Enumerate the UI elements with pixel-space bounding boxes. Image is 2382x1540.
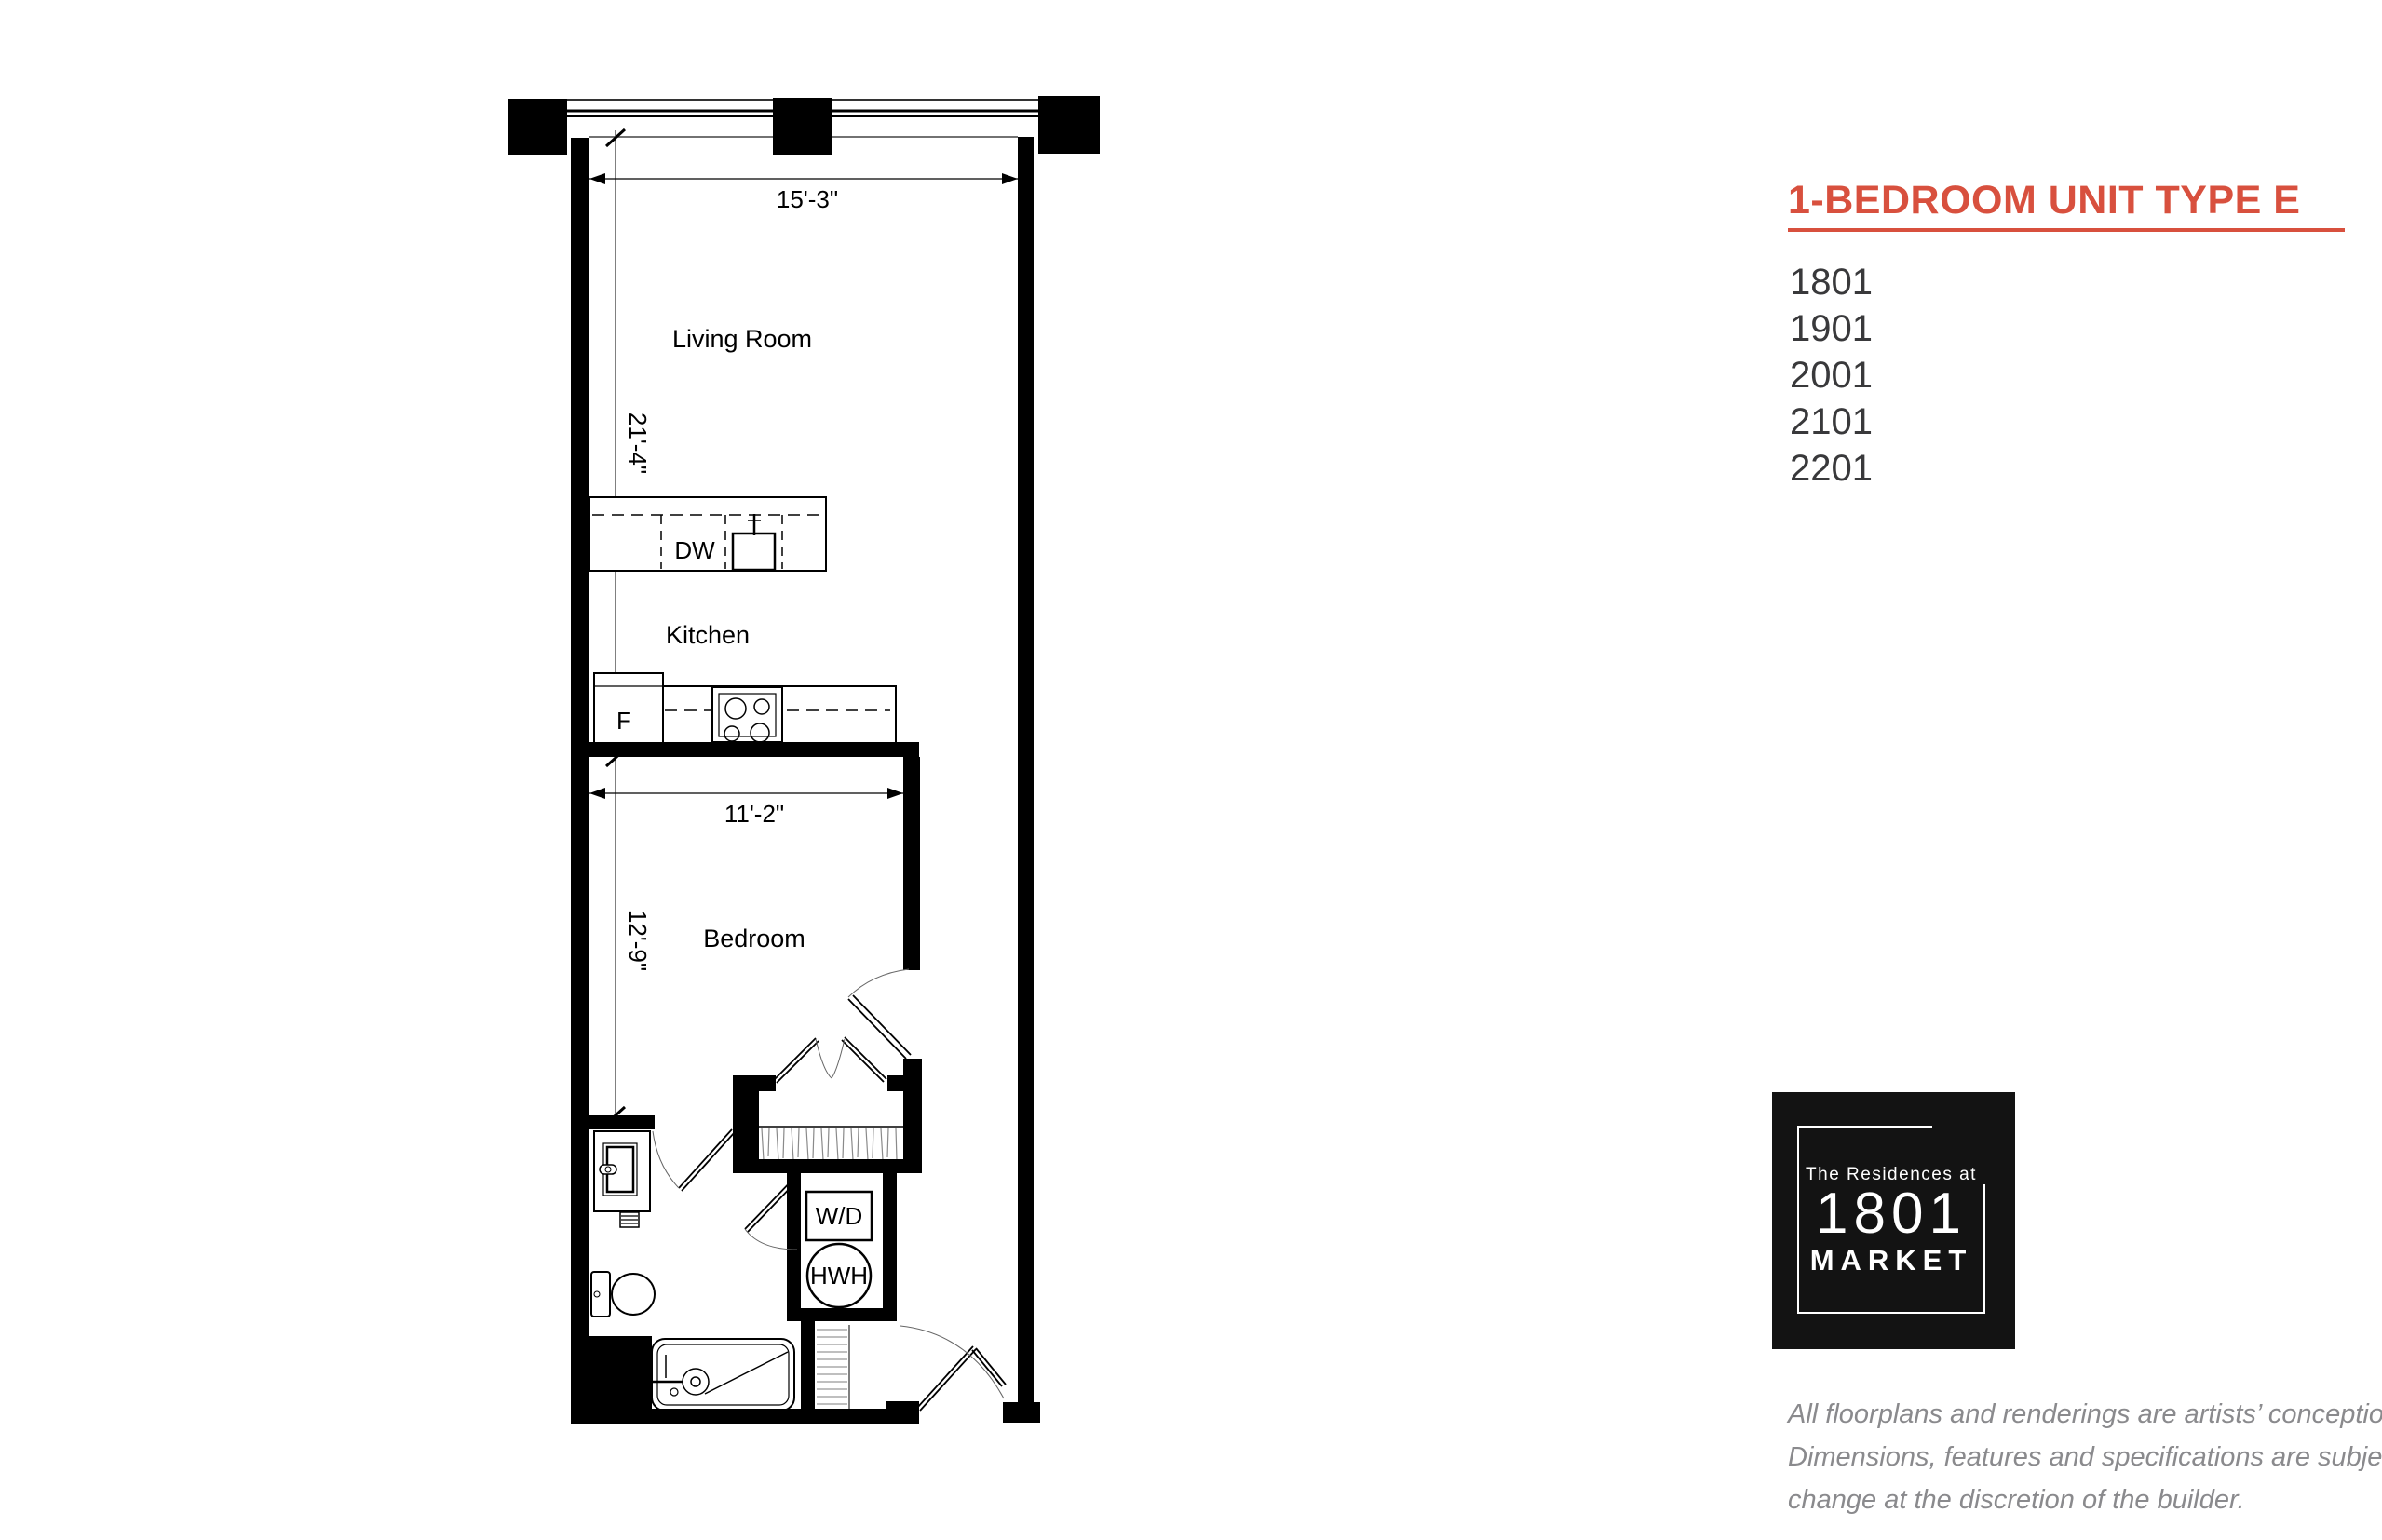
unit-number: 1901: [1790, 305, 1873, 352]
bathroom-door: [653, 1129, 735, 1191]
unit-number: 2101: [1790, 399, 1873, 445]
floorplan-page: Living Room Kitchen Bedroom DW F 15'-3" …: [0, 0, 2382, 1540]
walls: [508, 96, 1100, 1424]
dim-living-width: 15'-3": [777, 185, 838, 213]
water-heater-label: HWH: [810, 1262, 868, 1290]
bathtub: [652, 1339, 794, 1411]
living-room-label: Living Room: [672, 325, 812, 353]
kitchen-label: Kitchen: [666, 621, 750, 649]
kitchen-bedroom-wall: [589, 742, 919, 757]
logo-market: MARKET: [1791, 1244, 1992, 1277]
unit-number: 2001: [1790, 352, 1873, 399]
bedroom-door: [848, 969, 911, 1059]
bottom-wall: [571, 1409, 919, 1424]
disclaimer-line: Dimensions, features and specifications …: [1788, 1436, 2382, 1479]
brand-logo: The Residences at 1801 MARKET: [1772, 1092, 2015, 1349]
closet-hangers: [762, 1128, 897, 1160]
unit-number: 1801: [1790, 259, 1873, 305]
right-wall: [1018, 137, 1034, 1404]
dim-bedroom-depth: 12'-9": [624, 910, 652, 971]
logo-frame-top: [1797, 1126, 1932, 1128]
bedroom-closet-doors: [774, 1037, 886, 1083]
unit-numbers: 1801 1901 2001 2101 2201: [1790, 259, 1873, 492]
unit-number: 2201: [1790, 445, 1873, 492]
logo-number: 1801: [1791, 1185, 1992, 1243]
stove: [712, 687, 782, 742]
column-left: [508, 99, 567, 155]
left-wall: [571, 138, 589, 1424]
disclaimer-line: change at the discretion of the builder.: [1788, 1479, 2382, 1521]
plan-labels: Living Room Kitchen Bedroom DW F 15'-3" …: [616, 185, 838, 971]
title-underline: [1788, 228, 2345, 232]
bedroom-label: Bedroom: [703, 925, 805, 952]
dim-living-depth: 21'-4": [624, 412, 652, 474]
linen-shelves: [817, 1330, 847, 1404]
island-sink: [733, 534, 775, 570]
dim-bedroom-width: 11'-2": [724, 800, 784, 828]
logo-frame-bottom: [1797, 1312, 1985, 1314]
kitchen-fixtures: [589, 497, 896, 743]
column-middle: [773, 98, 832, 155]
disclaimer-line: All floorplans and renderings are artist…: [1788, 1393, 2382, 1436]
page-title: 1-BEDROOM UNIT TYPE E: [1788, 178, 2300, 223]
column-right: [1038, 96, 1100, 154]
washer-dryer-label: W/D: [816, 1202, 863, 1230]
bedroom-right-wall: [903, 757, 920, 970]
dimension-lines: [589, 129, 1018, 1124]
dishwasher-label: DW: [674, 536, 715, 564]
bathroom-wall: [571, 1115, 655, 1129]
disclaimer-text: All floorplans and renderings are artist…: [1788, 1393, 2382, 1521]
entry-door: [900, 1326, 1006, 1411]
toilet-bowl: [612, 1274, 655, 1315]
fridge-label: F: [616, 707, 631, 735]
